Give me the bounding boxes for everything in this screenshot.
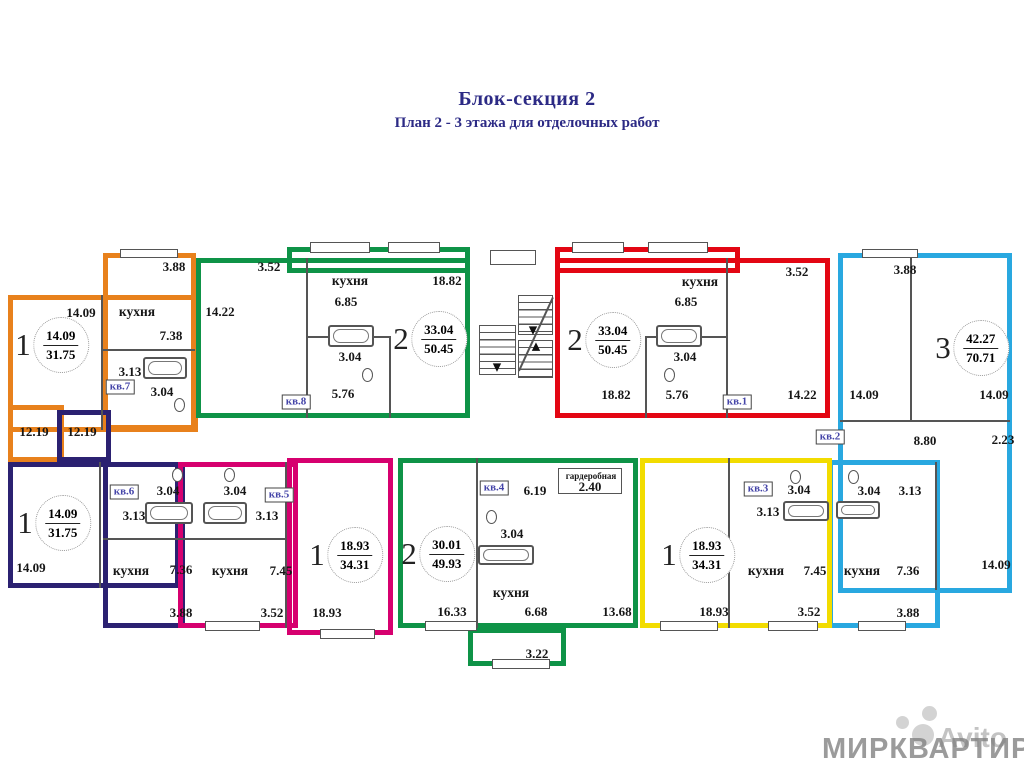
room-label: кухня — [119, 304, 155, 320]
toilet-icon — [486, 510, 497, 524]
interior-wall — [840, 420, 1010, 422]
watermark-mirkvartir: МИРКВАРТИР — [822, 733, 1024, 766]
dimension-label: 3.88 — [163, 259, 186, 275]
dimension-label: 3.04 — [157, 483, 180, 499]
unit-number-tag-кв.7: кв.7 — [106, 380, 135, 395]
dimension-label: 6.85 — [675, 294, 698, 310]
total-area: 34.31 — [340, 556, 369, 573]
window — [388, 242, 440, 253]
stairs-arrow-down-icon: ▼ — [529, 324, 537, 337]
interior-wall — [101, 295, 103, 430]
unit-number-tag-кв.1: кв.1 — [723, 395, 752, 410]
apartment-badge-кв.2: 342.2770.71 — [935, 320, 1009, 376]
room-count: 1 — [15, 327, 31, 363]
living-area: 42.27 — [963, 331, 998, 349]
apartment-badge-кв.8: 233.0450.45 — [393, 311, 467, 367]
bathtub-icon — [143, 357, 187, 379]
bathtub-icon — [328, 325, 374, 347]
room-count: 3 — [935, 330, 951, 366]
living-area: 14.09 — [45, 506, 80, 524]
dimension-label: 2.40 — [579, 479, 602, 495]
room-label: кухня — [493, 585, 529, 601]
dimension-label: 5.76 — [666, 387, 689, 403]
total-area: 49.93 — [432, 555, 461, 572]
dimension-label: 3.04 — [858, 483, 881, 499]
area-circle: 14.0931.75 — [35, 495, 91, 551]
dimension-label: 14.09 — [979, 387, 1008, 403]
toilet-icon — [172, 468, 183, 482]
dimension-label: 3.13 — [119, 364, 142, 380]
room-count: 1 — [17, 505, 33, 541]
area-circle: 42.2770.71 — [953, 320, 1009, 376]
total-area: 50.45 — [598, 341, 627, 358]
living-area: 33.04 — [421, 322, 456, 340]
window — [862, 249, 918, 258]
dimension-label: 3.04 — [151, 384, 174, 400]
total-area: 31.75 — [46, 346, 75, 363]
dimension-label: 3.04 — [501, 526, 524, 542]
area-circle: 18.9334.31 — [327, 527, 383, 583]
unit-number-tag-кв.8: кв.8 — [282, 395, 311, 410]
area-circle: 18.9334.31 — [679, 527, 735, 583]
window — [660, 621, 718, 631]
apartment-badge-кв.4: 230.0149.93 — [401, 526, 475, 582]
total-area: 70.71 — [966, 349, 995, 366]
interior-wall — [645, 336, 647, 418]
window — [425, 621, 477, 631]
total-area: 50.45 — [424, 340, 453, 357]
dimension-label: 3.52 — [798, 604, 821, 620]
dimension-label: 7.45 — [270, 563, 293, 579]
dimension-label: 7.36 — [170, 562, 193, 578]
dimension-label: 6.68 — [525, 604, 548, 620]
area-circle: 14.0931.75 — [33, 317, 89, 373]
unit-number-tag-кв.3: кв.3 — [744, 482, 773, 497]
dimension-label: 13.68 — [602, 604, 631, 620]
room-label: кухня — [332, 273, 368, 289]
interior-wall — [476, 458, 478, 628]
room-label: кухня — [113, 563, 149, 579]
interior-wall — [935, 462, 937, 590]
dimension-label: 3.04 — [788, 482, 811, 498]
dimension-label: 12.19 — [67, 424, 96, 440]
living-area: 30.01 — [429, 537, 464, 555]
dimension-label: 3.13 — [899, 483, 922, 499]
dimension-label: 14.09 — [849, 387, 878, 403]
dimension-label: 3.04 — [224, 483, 247, 499]
dimension-label: 18.82 — [432, 273, 461, 289]
unit-number-tag-кв.6: кв.6 — [110, 485, 139, 500]
dimension-label: 8.80 — [914, 433, 937, 449]
living-area: 18.93 — [337, 538, 372, 556]
bathtub-icon — [656, 325, 702, 347]
dimension-label: 7.45 — [804, 563, 827, 579]
dimension-label: 3.88 — [170, 605, 193, 621]
toilet-icon — [224, 468, 235, 482]
stairs-arrow-up-icon: ▲ — [532, 340, 540, 353]
living-area: 33.04 — [595, 323, 630, 341]
dimension-label: 7.36 — [897, 563, 920, 579]
toilet-icon — [664, 368, 675, 382]
dimension-label: 3.52 — [261, 605, 284, 621]
window — [120, 249, 178, 258]
area-circle: 30.0149.93 — [419, 526, 475, 582]
dimension-label: 7.38 — [160, 328, 183, 344]
total-area: 31.75 — [48, 524, 77, 541]
unit-number-tag-кв.4: кв.4 — [480, 481, 509, 496]
dimension-label: 3.13 — [123, 508, 146, 524]
window — [320, 629, 375, 639]
bathtub-icon — [836, 501, 880, 519]
interior-wall — [103, 349, 195, 351]
dimension-label: 5.76 — [332, 386, 355, 402]
window — [310, 242, 370, 253]
window — [205, 621, 260, 631]
window — [768, 621, 818, 631]
toilet-icon — [174, 398, 185, 412]
dimension-label: 14.22 — [787, 387, 816, 403]
living-area: 14.09 — [43, 328, 78, 346]
area-circle: 33.0450.45 — [411, 311, 467, 367]
apartment-badge-кв.1: 233.0450.45 — [567, 312, 641, 368]
dimension-label: 3.52 — [258, 259, 281, 275]
window — [572, 242, 624, 253]
room-label: кухня — [748, 563, 784, 579]
window — [858, 621, 906, 631]
apartment-badge-кв.6: 114.0931.75 — [17, 495, 91, 551]
avito-logo-dot — [896, 716, 909, 729]
entrance-landing — [490, 250, 536, 265]
toilet-icon — [362, 368, 373, 382]
page-title: Блок-секция 2 — [0, 88, 1024, 111]
living-area: 18.93 — [689, 538, 724, 556]
dimension-label: 14.09 — [981, 557, 1010, 573]
room-count: 2 — [393, 321, 409, 357]
dimension-label: 3.22 — [526, 646, 549, 662]
window — [648, 242, 708, 253]
room-count: 2 — [401, 536, 417, 572]
area-circle: 33.0450.45 — [585, 312, 641, 368]
total-area: 34.31 — [692, 556, 721, 573]
dimension-label: 14.09 — [16, 560, 45, 576]
dimension-label: 18.93 — [699, 604, 728, 620]
room-label: кухня — [212, 563, 248, 579]
dimension-label: 3.52 — [786, 264, 809, 280]
apartment-outline-kv2 — [828, 460, 940, 628]
room-count: 1 — [661, 537, 677, 573]
dimension-label: 6.85 — [335, 294, 358, 310]
title-block: Блок-секция 2 План 2 - 3 этажа для отдел… — [0, 88, 1024, 132]
dimension-label: 3.13 — [757, 504, 780, 520]
toilet-icon — [848, 470, 859, 484]
bathtub-icon — [783, 501, 829, 521]
avito-logo-dot — [922, 706, 937, 721]
floor-plan-page: Блок-секция 2 План 2 - 3 этажа для отдел… — [0, 0, 1024, 768]
interior-wall — [103, 538, 183, 540]
bathtub-icon — [145, 502, 193, 524]
dimension-label: 3.13 — [256, 508, 279, 524]
dimension-label: 2.23 — [992, 432, 1015, 448]
apartment-badge-кв.5: 118.9334.31 — [309, 527, 383, 583]
room-label: кухня — [682, 274, 718, 290]
dimension-label: 18.93 — [312, 605, 341, 621]
dimension-label: 6.19 — [524, 483, 547, 499]
page-subtitle: План 2 - 3 этажа для отделочных работ — [0, 115, 1024, 132]
dimension-label: 3.04 — [339, 349, 362, 365]
interior-wall — [99, 462, 101, 588]
unit-number-tag-кв.5: кв.5 — [265, 488, 294, 503]
dimension-label: 16.33 — [437, 604, 466, 620]
interior-wall — [180, 538, 287, 540]
stairs-arrow-down-icon: ▼ — [493, 361, 501, 374]
room-label: кухня — [844, 563, 880, 579]
interior-wall — [910, 253, 912, 420]
interior-wall — [389, 336, 391, 418]
dimension-label: 12.19 — [19, 424, 48, 440]
unit-number-tag-кв.2: кв.2 — [816, 430, 845, 445]
room-count: 2 — [567, 322, 583, 358]
dimension-label: 3.88 — [897, 605, 920, 621]
apartment-badge-кв.3: 118.9334.31 — [661, 527, 735, 583]
bathtub-icon — [203, 502, 247, 524]
apartment-badge-кв.7: 114.0931.75 — [15, 317, 89, 373]
bathtub-icon — [478, 545, 534, 565]
dimension-label: 3.88 — [894, 262, 917, 278]
dimension-label: 3.04 — [674, 349, 697, 365]
dimension-label: 18.82 — [601, 387, 630, 403]
room-count: 1 — [309, 537, 325, 573]
dimension-label: 14.22 — [205, 304, 234, 320]
